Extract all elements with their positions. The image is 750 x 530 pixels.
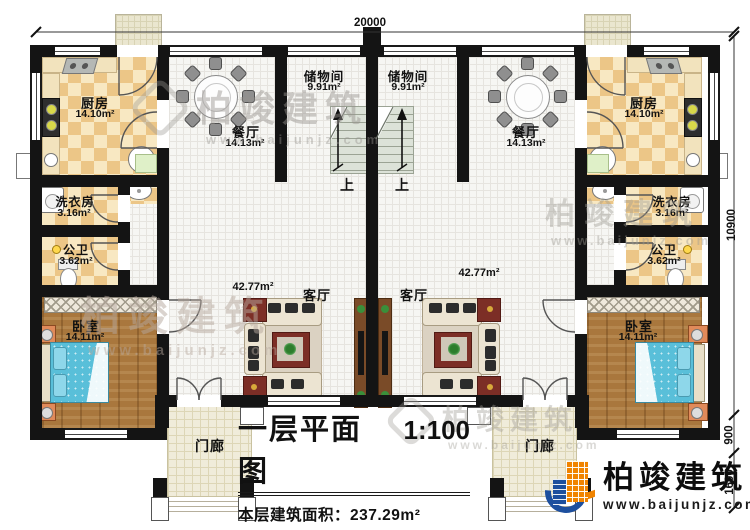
room-area-living-right: 42.77m²	[459, 267, 500, 279]
dim-top-width: 20000	[354, 17, 386, 29]
room-area-bathroom-right: 3.62m²	[647, 255, 680, 267]
room-area-bedroom-left: 14.11m²	[66, 331, 105, 343]
room-area-storage-right: 9.91m²	[391, 81, 424, 93]
plan-scale: 1:100	[404, 415, 471, 446]
room-label-living-right: 客厅	[400, 285, 428, 304]
room-label-porch-right: 门廊	[525, 436, 555, 456]
room-area-laundry-right: 3.16m²	[655, 207, 688, 219]
stair-up-arrows	[333, 108, 407, 171]
brand-logo: 柏竣建筑 www.baijunjz.com	[545, 461, 750, 517]
floor-area-value: 237.29m²	[350, 507, 420, 524]
room-area-dining-right: 14.13m²	[506, 137, 545, 149]
room-label-living-left: 客厅	[303, 285, 331, 304]
stairs-up-label-right: 上	[395, 175, 409, 195]
room-area-living-left: 42.77m²	[233, 281, 274, 293]
room-area-kitchen-left: 14.10m²	[75, 108, 114, 120]
floor-area-line: 本层建筑面积：237.29m²	[238, 503, 500, 525]
brand-logo-icon	[545, 461, 595, 517]
dim-right-height: 10900	[726, 209, 738, 241]
floor-area-label: 本层建筑面积：	[238, 507, 350, 524]
room-area-laundry-left: 3.16m²	[57, 207, 90, 219]
brand-website: www.baijunjz.com	[603, 497, 750, 512]
dim-right-porch: 900	[724, 425, 736, 444]
stairs-up-label-left: 上	[340, 175, 354, 195]
room-area-kitchen-right: 14.10m²	[624, 108, 663, 120]
logo-building-orange	[566, 461, 588, 502]
logo-building-blue	[553, 479, 566, 505]
floor-plan-canvas: 厨房 14.10m² 厨房 14.10m² 餐厅 14.13m² 餐厅 14.1…	[0, 0, 750, 530]
room-area-bedroom-right: 14.11m²	[619, 331, 658, 343]
title-block: 一层平面图 1:100 本层建筑面积：237.29m² 本栋建筑面积：438.1…	[238, 406, 500, 530]
door-swing-arcs	[91, 57, 653, 400]
room-area-bathroom-left: 3.62m²	[59, 255, 92, 267]
logo-accent	[588, 490, 595, 500]
room-label-porch-left: 门廊	[195, 436, 225, 456]
plan-title-row: 一层平面图 1:100	[238, 406, 470, 496]
plan-title: 一层平面图	[238, 406, 392, 490]
room-area-dining-left: 14.13m²	[225, 137, 264, 149]
brand-name: 柏竣建筑	[603, 461, 750, 495]
room-area-storage-left: 9.91m²	[307, 81, 340, 93]
